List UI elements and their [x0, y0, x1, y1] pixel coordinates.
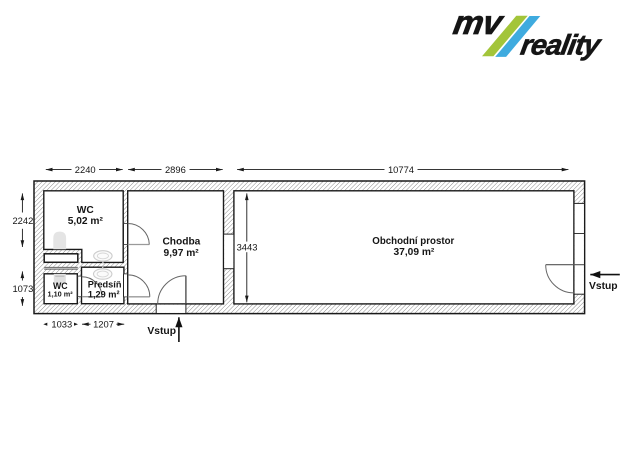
svg-text:2896: 2896 [165, 164, 186, 175]
svg-text:1033: 1033 [51, 319, 72, 330]
svg-text:Vstup: Vstup [147, 326, 176, 337]
svg-text:Obchodní prostor: Obchodní prostor [372, 236, 454, 247]
svg-text:2242: 2242 [12, 215, 33, 226]
svg-text:WC: WC [77, 205, 95, 216]
svg-text:5,02 m²: 5,02 m² [68, 216, 104, 227]
svg-text:Vstup: Vstup [589, 281, 618, 292]
svg-text:3443: 3443 [237, 241, 258, 252]
svg-text:1,29 m²: 1,29 m² [88, 289, 120, 299]
svg-text:2240: 2240 [75, 164, 96, 175]
svg-text:1207: 1207 [93, 319, 114, 330]
svg-text:1073: 1073 [12, 283, 33, 294]
svg-text:10774: 10774 [388, 164, 414, 175]
svg-text:37,09 m²: 37,09 m² [394, 247, 435, 258]
svg-text:9,97 m²: 9,97 m² [164, 248, 200, 259]
svg-text:reality: reality [518, 30, 605, 62]
svg-text:Předsíň: Předsíň [88, 279, 122, 289]
svg-text:1,10 m²: 1,10 m² [48, 289, 74, 298]
svg-text:Chodba: Chodba [162, 236, 200, 247]
svg-text:mv: mv [451, 4, 508, 42]
